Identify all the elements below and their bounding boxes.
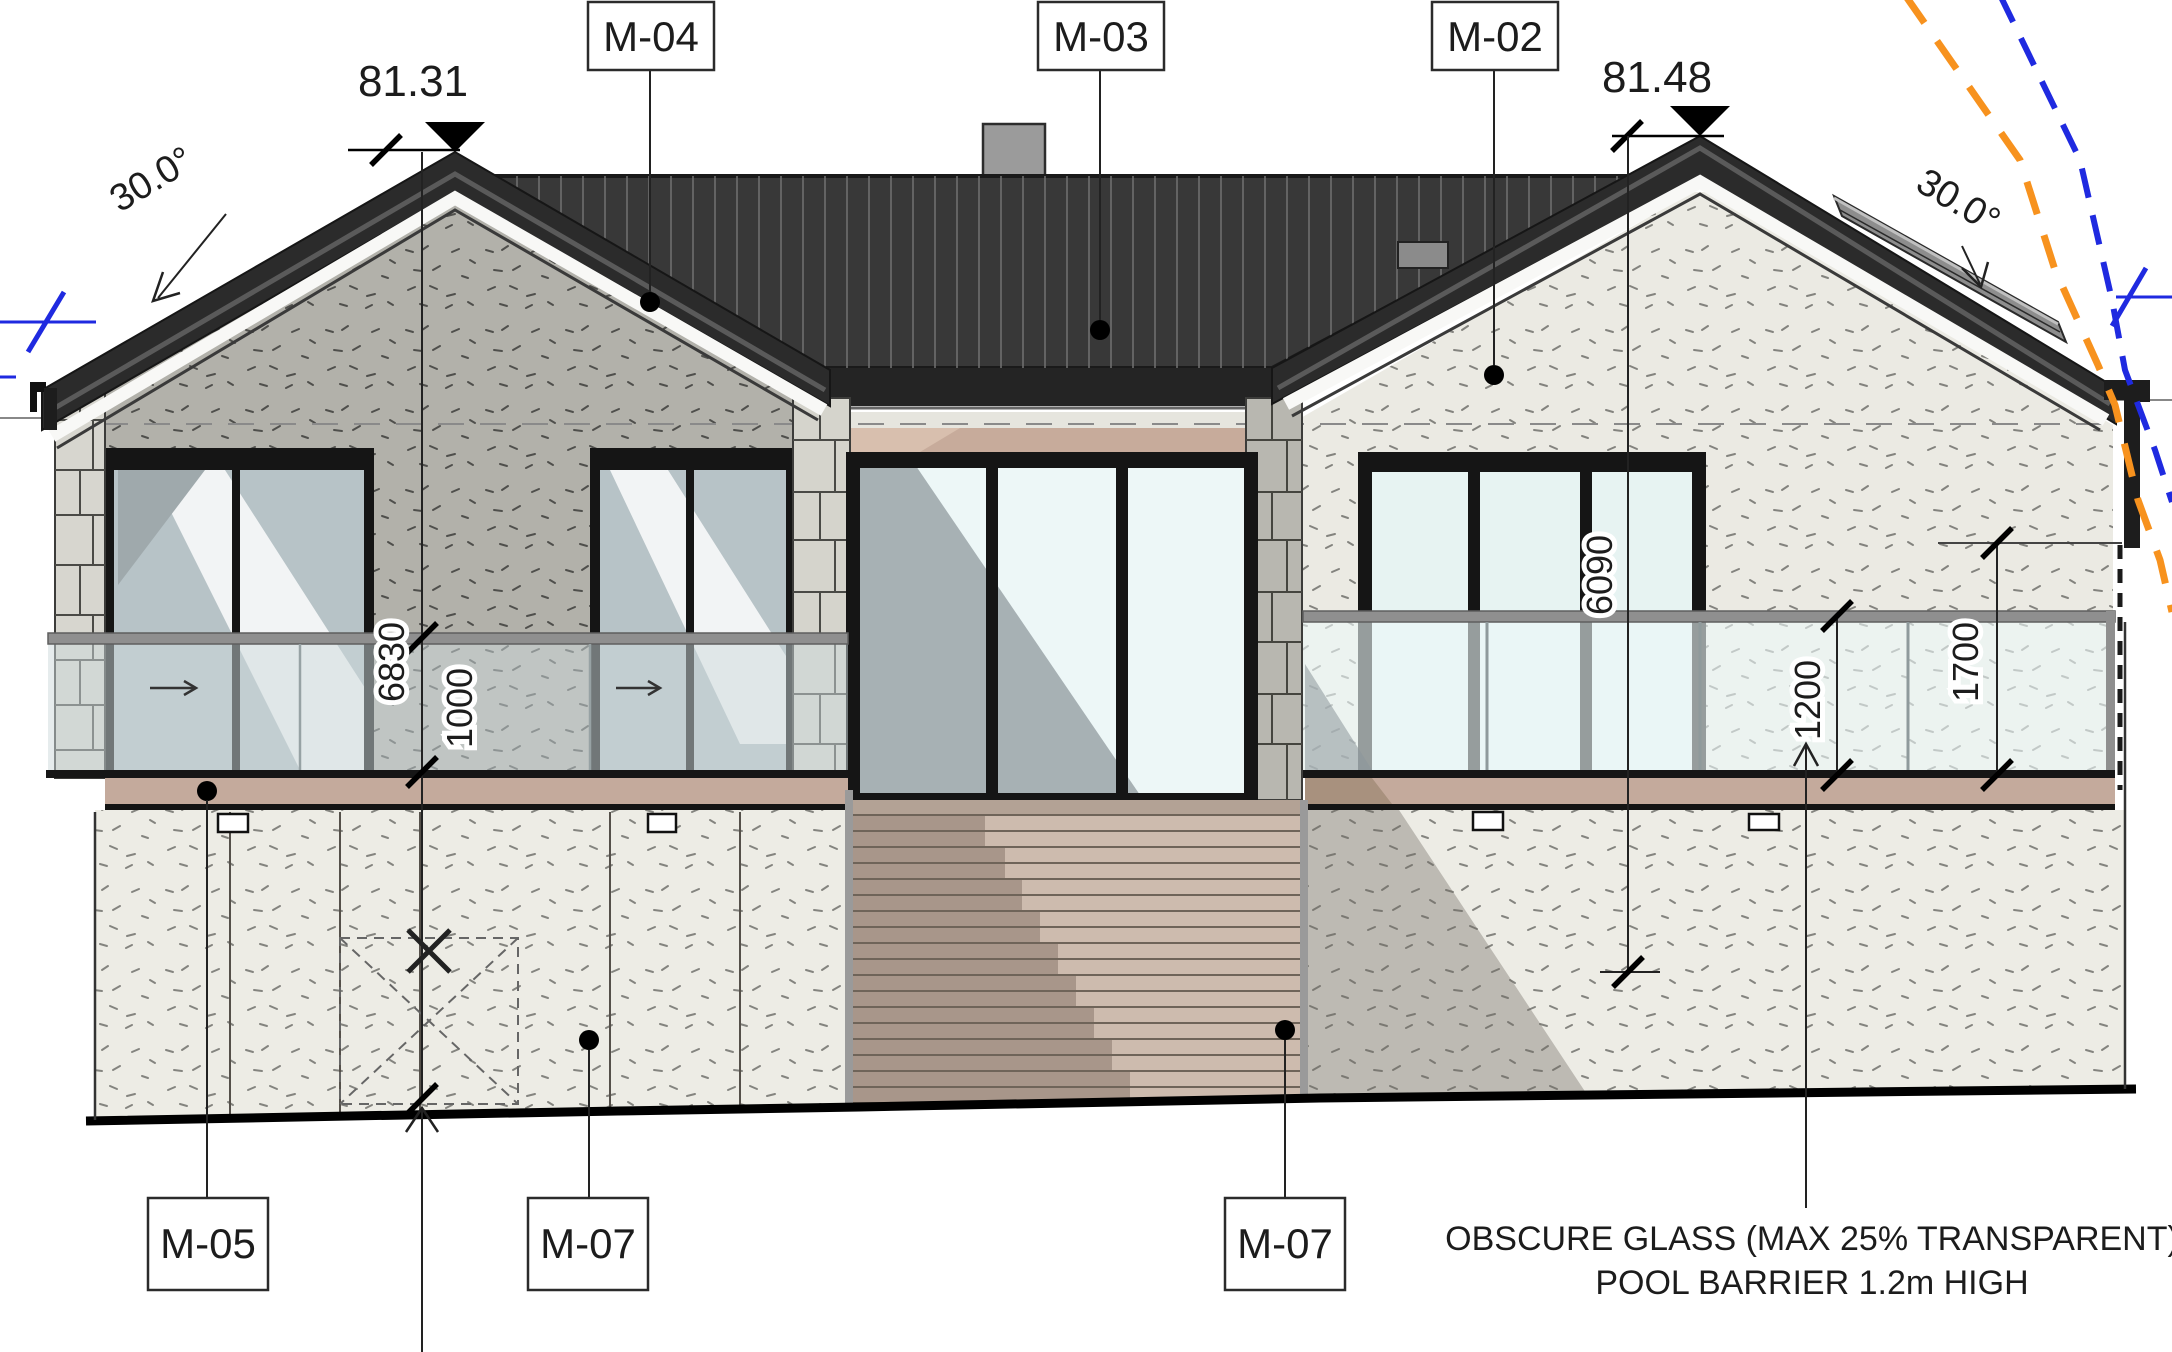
obscure-glass-panels <box>1303 622 2115 772</box>
entry-mullion <box>986 468 998 798</box>
subfloor-vent <box>1749 814 1779 830</box>
entry-head <box>846 452 1258 468</box>
window-head <box>1358 452 1706 472</box>
elevation-drawing: 81.31 81.48 6830 1000 6090 1700 1200 <box>0 0 2172 1352</box>
entry-mullion <box>1116 468 1128 798</box>
dim-1200-label: 1200 <box>1787 660 1828 740</box>
leader-dot <box>1275 1020 1295 1040</box>
leader-dot <box>640 292 660 312</box>
stair-treads <box>846 800 1308 1107</box>
roof-flue-vent <box>983 124 1045 182</box>
leader-dot <box>579 1030 599 1050</box>
dim-6830-label: 6830 <box>371 622 412 702</box>
subfloor-vent <box>648 814 676 832</box>
balustrade-top-rail <box>1303 611 2115 622</box>
tag-m04-label: M-04 <box>603 13 699 60</box>
entry-glazed-doors <box>846 452 1258 801</box>
window-head <box>104 448 374 470</box>
elevation-sheet: 81.31 81.48 6830 1000 6090 1700 1200 <box>0 0 2172 1352</box>
dim-6090-label: 6090 <box>1579 535 1620 615</box>
tag-m02-label: M-02 <box>1447 13 1543 60</box>
window-head <box>590 448 796 470</box>
tag-m07-left-label: M-07 <box>540 1220 636 1267</box>
leader-dot <box>1484 365 1504 385</box>
tag-m07-right-label: M-07 <box>1237 1220 1333 1267</box>
dim-1000-label: 1000 <box>439 668 480 748</box>
subfloor-vent <box>218 814 248 832</box>
balustrade-top-rail <box>48 633 848 644</box>
note-line-1: OBSCURE GLASS (MAX 25% TRANSPARENT) <box>1445 1220 2172 1258</box>
subfloor-vent <box>1473 812 1503 830</box>
dim-1700-label: 1700 <box>1945 622 1986 702</box>
leader-dot <box>1090 320 1110 340</box>
central-eave-fascia <box>822 368 1272 406</box>
note-line-2: POOL BARRIER 1.2m HIGH <box>1595 1264 2028 1302</box>
entry-header-strip <box>828 428 1280 452</box>
roof-vent <box>1398 242 1448 268</box>
tag-m05-label: M-05 <box>160 1220 256 1267</box>
entry-stairs <box>845 790 1308 1108</box>
level-left-label: 81.31 <box>358 57 468 106</box>
leader-dot <box>197 781 217 801</box>
tag-m03-label: M-03 <box>1053 13 1149 60</box>
level-right-label: 81.48 <box>1602 53 1712 102</box>
